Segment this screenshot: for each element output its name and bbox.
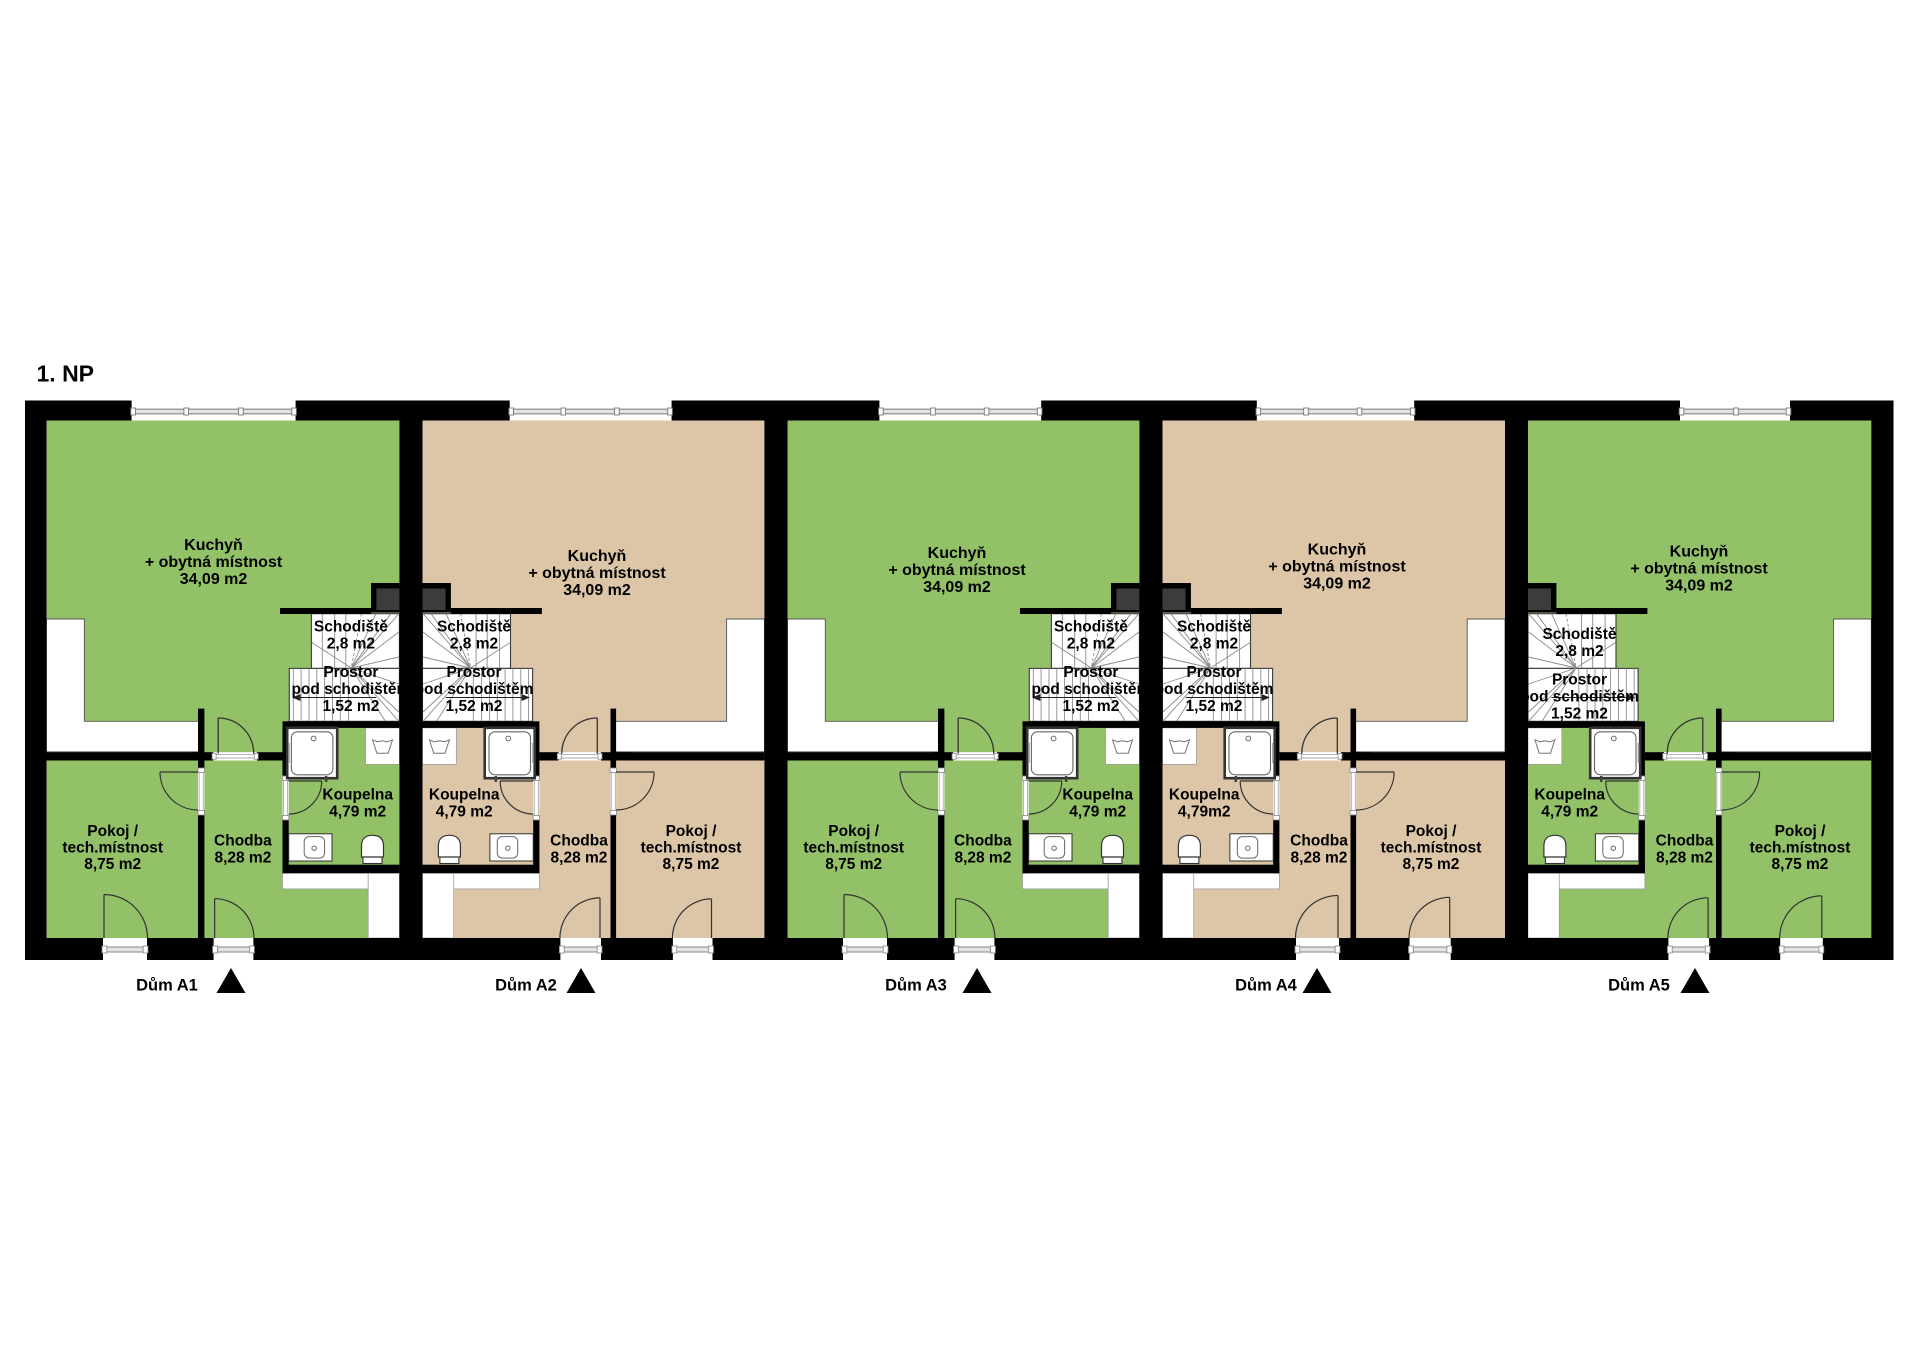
svg-text:Dům A2: Dům A2 bbox=[495, 977, 557, 995]
svg-text:Dům A3: Dům A3 bbox=[885, 977, 947, 995]
svg-text:Schodiště: Schodiště bbox=[314, 619, 388, 636]
svg-text:tech.místnost: tech.místnost bbox=[1750, 840, 1851, 857]
svg-text:Koupelna: Koupelna bbox=[1169, 787, 1240, 804]
svg-text:Dům A5: Dům A5 bbox=[1608, 977, 1670, 995]
svg-text:pod schodištěm: pod schodištěm bbox=[1155, 681, 1274, 698]
svg-text:2,8 m2: 2,8 m2 bbox=[450, 636, 498, 653]
svg-text:Koupelna: Koupelna bbox=[1062, 787, 1133, 804]
svg-text:Prostor: Prostor bbox=[323, 664, 378, 681]
svg-text:Chodba: Chodba bbox=[214, 833, 272, 850]
svg-text:Prostor: Prostor bbox=[1063, 664, 1118, 681]
svg-text:1,52 m2: 1,52 m2 bbox=[1186, 698, 1243, 715]
svg-text:Chodba: Chodba bbox=[1290, 833, 1348, 850]
svg-text:Schodiště: Schodiště bbox=[1054, 619, 1128, 636]
svg-text:+ obytná místnost: + obytná místnost bbox=[1630, 561, 1768, 578]
svg-text:8,28 m2: 8,28 m2 bbox=[1291, 850, 1348, 867]
svg-text:4,79 m2: 4,79 m2 bbox=[1541, 804, 1598, 821]
svg-text:8,28 m2: 8,28 m2 bbox=[214, 850, 271, 867]
svg-text:2,8 m2: 2,8 m2 bbox=[1555, 643, 1603, 660]
svg-text:8,75 m2: 8,75 m2 bbox=[825, 856, 882, 873]
svg-text:4,79 m2: 4,79 m2 bbox=[1069, 804, 1126, 821]
svg-text:8,75 m2: 8,75 m2 bbox=[1403, 856, 1460, 873]
svg-text:Dům A4: Dům A4 bbox=[1235, 977, 1298, 995]
svg-text:Pokoj /: Pokoj / bbox=[666, 823, 718, 840]
svg-text:8,75 m2: 8,75 m2 bbox=[663, 856, 720, 873]
svg-text:Schodiště: Schodiště bbox=[1542, 626, 1616, 643]
svg-text:Chodba: Chodba bbox=[550, 833, 608, 850]
svg-text:1. NP: 1. NP bbox=[37, 361, 95, 387]
svg-text:1,52 m2: 1,52 m2 bbox=[322, 698, 379, 715]
svg-text:Schodiště: Schodiště bbox=[437, 619, 511, 636]
svg-text:8,28 m2: 8,28 m2 bbox=[1656, 850, 1713, 867]
svg-text:Prostor: Prostor bbox=[1186, 664, 1241, 681]
svg-text:pod schodištěm: pod schodištěm bbox=[1520, 689, 1639, 706]
svg-text:1,52 m2: 1,52 m2 bbox=[1062, 698, 1119, 715]
svg-text:Kuchyň: Kuchyň bbox=[184, 537, 243, 554]
svg-text:Pokoj /: Pokoj / bbox=[87, 823, 139, 840]
svg-text:Chodba: Chodba bbox=[954, 833, 1012, 850]
svg-text:4,79 m2: 4,79 m2 bbox=[436, 804, 493, 821]
svg-text:1,52 m2: 1,52 m2 bbox=[446, 698, 503, 715]
svg-text:2,8 m2: 2,8 m2 bbox=[1067, 636, 1115, 653]
svg-text:34,09 m2: 34,09 m2 bbox=[563, 582, 631, 599]
svg-text:tech.místnost: tech.místnost bbox=[62, 840, 163, 857]
svg-text:pod schodištěm: pod schodištěm bbox=[415, 681, 534, 698]
svg-text:Pokoj /: Pokoj / bbox=[1775, 823, 1827, 840]
svg-text:Kuchyň: Kuchyň bbox=[568, 548, 627, 565]
svg-text:tech.místnost: tech.místnost bbox=[1381, 840, 1482, 857]
svg-text:34,09 m2: 34,09 m2 bbox=[1303, 576, 1371, 593]
svg-text:34,09 m2: 34,09 m2 bbox=[180, 571, 248, 588]
svg-text:Dům A1: Dům A1 bbox=[136, 977, 198, 995]
svg-text:Koupelna: Koupelna bbox=[429, 787, 500, 804]
svg-text:+ obytná místnost: + obytná místnost bbox=[1268, 559, 1406, 576]
svg-text:pod schodištěm: pod schodištěm bbox=[291, 681, 410, 698]
svg-text:Chodba: Chodba bbox=[1656, 833, 1714, 850]
svg-text:8,75 m2: 8,75 m2 bbox=[1772, 856, 1829, 873]
svg-text:4,79m2: 4,79m2 bbox=[1178, 804, 1231, 821]
svg-text:Kuchyň: Kuchyň bbox=[1308, 542, 1367, 559]
svg-text:tech.místnost: tech.místnost bbox=[641, 840, 742, 857]
svg-text:8,28 m2: 8,28 m2 bbox=[551, 850, 608, 867]
svg-text:34,09 m2: 34,09 m2 bbox=[923, 579, 991, 596]
svg-text:Pokoj /: Pokoj / bbox=[828, 823, 880, 840]
svg-text:34,09 m2: 34,09 m2 bbox=[1665, 578, 1733, 595]
svg-text:Koupelna: Koupelna bbox=[1534, 787, 1605, 804]
svg-text:tech.místnost: tech.místnost bbox=[803, 840, 904, 857]
svg-text:Prostor: Prostor bbox=[446, 664, 501, 681]
svg-text:1,52 m2: 1,52 m2 bbox=[1551, 706, 1608, 723]
svg-text:Prostor: Prostor bbox=[1552, 672, 1607, 689]
svg-text:8,75 m2: 8,75 m2 bbox=[84, 856, 141, 873]
svg-text:Koupelna: Koupelna bbox=[322, 787, 393, 804]
svg-text:4,79 m2: 4,79 m2 bbox=[329, 804, 386, 821]
svg-text:pod schodištěm: pod schodištěm bbox=[1031, 681, 1150, 698]
svg-text:8,28 m2: 8,28 m2 bbox=[954, 850, 1011, 867]
svg-text:Kuchyň: Kuchyň bbox=[1670, 544, 1729, 561]
svg-text:+ obytná místnost: + obytná místnost bbox=[888, 562, 1026, 579]
svg-text:Schodiště: Schodiště bbox=[1177, 619, 1251, 636]
svg-text:2,8 m2: 2,8 m2 bbox=[327, 636, 375, 653]
svg-text:Kuchyň: Kuchyň bbox=[928, 545, 987, 562]
svg-text:+ obytná místnost: + obytná místnost bbox=[528, 565, 666, 582]
svg-text:Pokoj /: Pokoj / bbox=[1406, 823, 1458, 840]
svg-text:2,8 m2: 2,8 m2 bbox=[1190, 636, 1238, 653]
svg-text:+ obytná místnost: + obytná místnost bbox=[145, 554, 283, 571]
